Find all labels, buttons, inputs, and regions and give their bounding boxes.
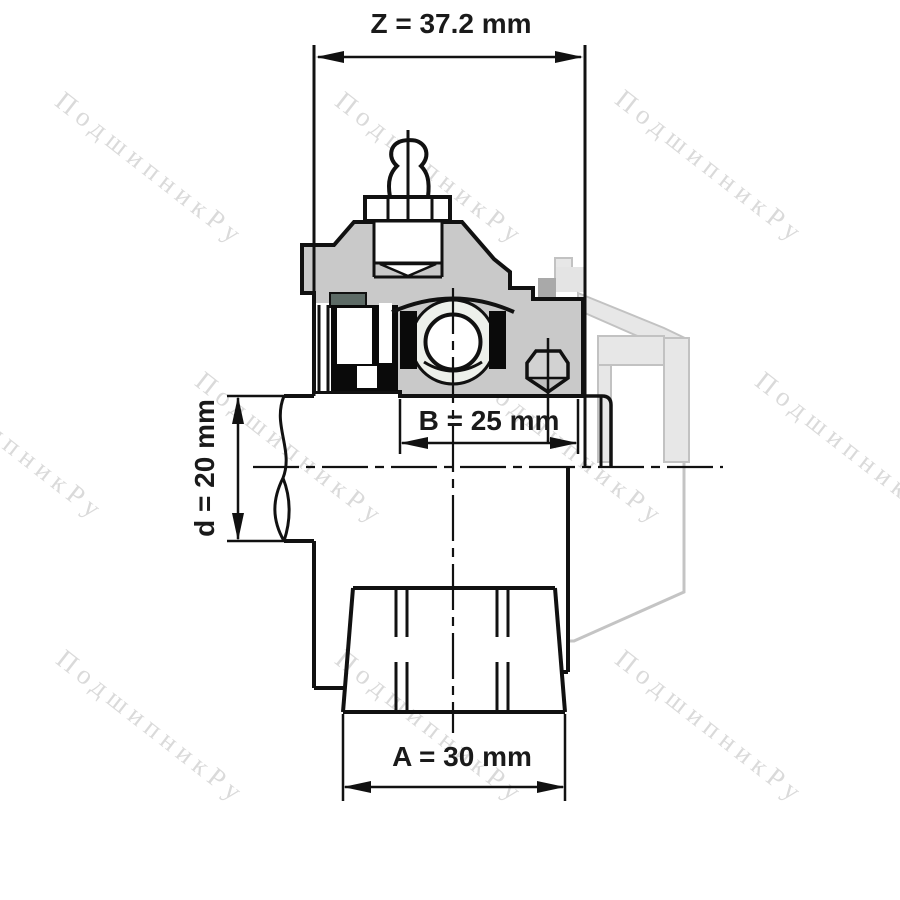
dimension-a-label: A = 30 mm: [392, 741, 532, 772]
dimension-d: d = 20 mm: [189, 396, 244, 541]
dimension-z-label: Z = 37.2 mm: [370, 8, 531, 39]
bearing-drawing: ПодшипникРу ПодшипникРу ПодшипникРу Подш…: [0, 0, 900, 900]
watermark-text: ПодшипникРу: [750, 365, 900, 532]
watermark-text: ПодшипникРу: [50, 85, 251, 252]
grease-passage-cavity: [374, 221, 442, 263]
watermark-text: ПодшипникРу: [610, 83, 811, 250]
grease-fitting: [365, 130, 450, 278]
seal-teal-insert: [330, 293, 366, 307]
dimension-d-label: d = 20 mm: [189, 399, 220, 537]
watermark-text: ПодшипникРу: [0, 360, 111, 527]
dimension-b-label: B = 25 mm: [419, 405, 560, 436]
technical-drawing-canvas: ПодшипникРу ПодшипникРу ПодшипникРу Подш…: [0, 0, 900, 900]
phantom-section-block: [538, 278, 556, 300]
watermark-layer: ПодшипникРу ПодшипникРу ПодшипникРу Подш…: [0, 83, 900, 810]
bearing-seal-right: [489, 311, 506, 369]
bearing-seal-left: [400, 311, 417, 369]
watermark-text: ПодшипникРу: [610, 643, 811, 810]
seal-slinger-detail: [316, 293, 398, 391]
watermark-text: ПодшипникРу: [51, 643, 252, 810]
phantom-right-leg: [664, 338, 689, 462]
dimension-b: B = 25 mm: [400, 399, 578, 454]
